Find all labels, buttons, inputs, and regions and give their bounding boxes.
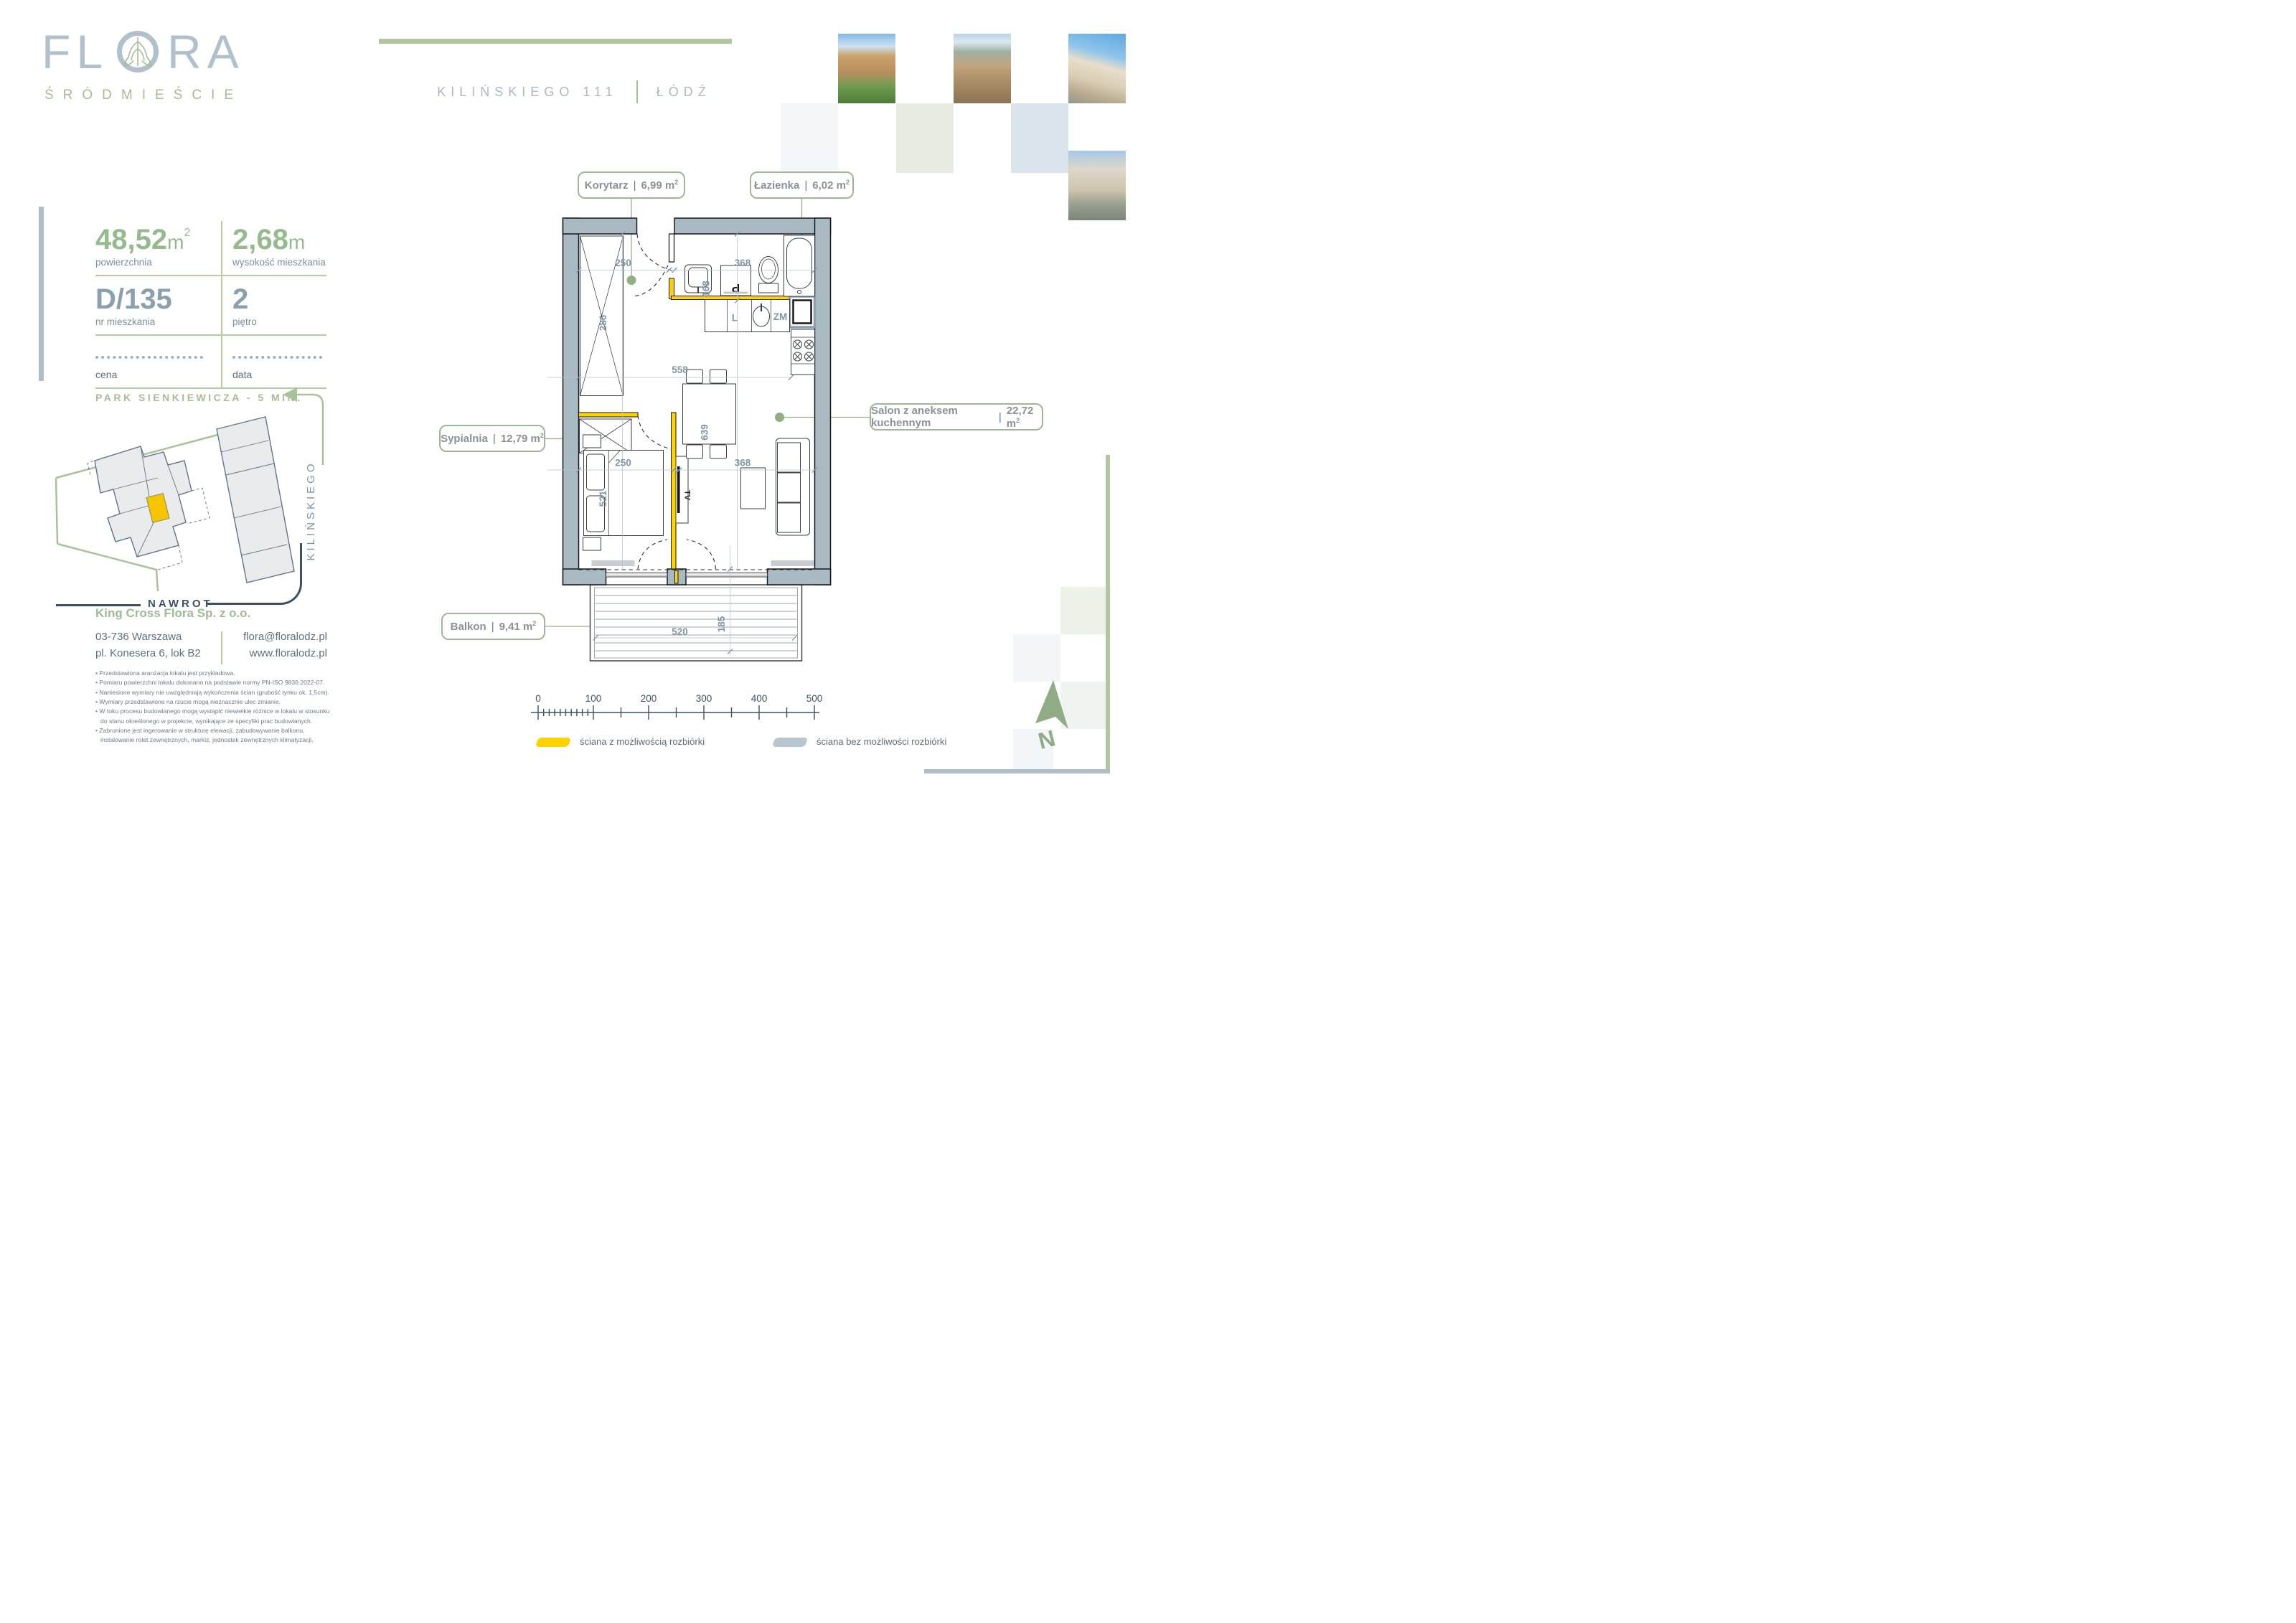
- deco-tile-gray: [781, 103, 838, 173]
- radiator: [592, 560, 635, 566]
- stat-unit-number-value: D/135: [95, 285, 221, 314]
- stat-floor-value: 2: [232, 285, 326, 314]
- dim-hall-depth: 286: [598, 314, 608, 331]
- dim-hall-width: 250: [615, 258, 631, 268]
- kitchen-counter: L ZM: [705, 300, 790, 332]
- north-arrow: N: [1027, 676, 1085, 753]
- bathtub: [784, 235, 815, 296]
- leaf-icon: [123, 36, 152, 67]
- demolishable-wall: [672, 413, 677, 569]
- stat-unit-number-label: nr mieszkania: [95, 316, 221, 327]
- room-label-salon: Salon z aneksem kuchennym| 22,72 m2: [870, 403, 1043, 431]
- stat-height-value: 2,68m: [232, 225, 326, 254]
- dim-bath-depth: 168: [701, 281, 712, 297]
- dim-bath-width: 368: [735, 258, 751, 268]
- disclaimer-item: • Pomiaru powierzchni lokalu dokonano na…: [95, 678, 332, 687]
- scale-label: 0: [535, 693, 541, 704]
- deco-tile-blue: [1011, 103, 1068, 173]
- deco-square: [1060, 587, 1108, 634]
- dim-living-length: 639: [700, 424, 710, 441]
- scale-label: 100: [585, 693, 602, 704]
- header-city: ŁÓDŹ: [657, 85, 711, 100]
- dining-table: [683, 370, 736, 458]
- stat-date-label: data: [232, 369, 326, 380]
- legend-label-demolishable: ściana z możliwością rozbiórki: [580, 736, 705, 747]
- dim-bedroom-width: 250: [615, 458, 631, 469]
- disclaimer: • Przedstawiona aranżacja lokalu jest pr…: [95, 669, 332, 745]
- scale-label: 300: [696, 693, 712, 704]
- stat-height: 2,68m wysokość mieszkania: [221, 217, 326, 275]
- header-green-bar: [379, 39, 732, 44]
- north-arrow-needle: [1035, 680, 1068, 729]
- flyer-page: FL RA ŚRÓDMIEŚCIE KILIŃSKIEGO 111 ŁÓDŹ: [0, 0, 1148, 812]
- photo-courtyard: [838, 34, 895, 103]
- header-address: KILIŃSKIEGO 111: [437, 85, 617, 100]
- company-name: King Cross Flora Sp. z o.o.: [95, 606, 250, 621]
- stats-block: 48,52m2 powierzchnia 2,68m wysokość mies…: [95, 217, 326, 389]
- stat-price: cena: [95, 336, 221, 387]
- stat-area: 48,52m2 powierzchnia: [95, 217, 221, 275]
- scale-label: 200: [641, 693, 657, 704]
- nawrot-line-right-corner: [206, 543, 302, 605]
- disclaimer-item: • Wymiary przedstawione na rzucie mogą n…: [95, 697, 332, 707]
- stat-area-value: 48,52m2: [95, 225, 221, 254]
- tv-symbol: TV: [683, 490, 692, 501]
- stat-area-label: powierzchnia: [95, 257, 221, 268]
- demolishable-wall-core: [675, 570, 679, 583]
- company-contact: flora@floralodz.pl www.floralodz.pl: [230, 629, 327, 662]
- stat-date: data: [221, 336, 326, 387]
- nightstand: [583, 435, 601, 448]
- stats-row-price-date: cena data: [95, 336, 326, 389]
- stats-row-area-height: 48,52m2 powierzchnia 2,68m wysokość mies…: [95, 217, 326, 276]
- brand-logo-word: FL RA: [42, 24, 329, 79]
- deco-square: [1013, 634, 1060, 682]
- radiator: [771, 560, 814, 566]
- deco-tile-green: [896, 103, 954, 173]
- balcony: [591, 585, 802, 661]
- bed: [583, 435, 664, 550]
- header-title: KILIŃSKIEGO 111 ŁÓDŹ: [402, 80, 746, 103]
- dim-total-width: 558: [672, 364, 688, 375]
- date-dotted-line: [232, 356, 322, 359]
- disclaimer-item: • Zabronione jest ingerowanie w struktur…: [95, 726, 332, 745]
- room-label-sypialnia: Sypialnia| 12,79 m2: [439, 425, 545, 452]
- stat-floor: 2 piętro: [221, 276, 326, 334]
- brand-logo: FL RA ŚRÓDMIEŚCIE: [42, 24, 329, 103]
- company-email-link[interactable]: flora@floralodz.pl: [243, 631, 327, 643]
- frame-bar-gray: [924, 769, 1110, 773]
- dim-balcony-width: 520: [672, 626, 688, 637]
- scale-label: 400: [751, 693, 768, 704]
- room-label-korytarz: Korytarz| 6,99 m2: [578, 171, 685, 199]
- company-street: pl. Konesera 6, lok B2: [95, 645, 201, 662]
- stats-divider: [221, 221, 222, 389]
- installation-shaft: [790, 296, 815, 327]
- dim-balcony-depth: 185: [716, 616, 727, 632]
- disclaimer-item: • Przedstawiona aranżacja lokalu jest pr…: [95, 669, 332, 678]
- dim-bedroom-length: 521: [598, 490, 608, 507]
- room-label-lazienka: Łazienka| 6,02 m2: [750, 171, 854, 199]
- stat-unit-number: D/135 nr mieszkania: [95, 276, 221, 334]
- photo-street-view: [1068, 151, 1126, 220]
- dim-living-width: 368: [735, 458, 751, 469]
- stats-row-unit-floor: D/135 nr mieszkania 2 piętro: [95, 276, 326, 336]
- nightstand: [583, 537, 601, 550]
- room-label-balkon: Balkon| 9,41 m2: [441, 613, 545, 640]
- logo-letters-fl: FL: [42, 24, 108, 79]
- sofa: [776, 438, 810, 535]
- scale-label: 500: [806, 693, 822, 704]
- stat-height-label: wysokość mieszkania: [232, 257, 326, 268]
- frame-bar-green: [1106, 455, 1110, 773]
- map-boundary-left: [56, 478, 57, 544]
- scale-bar: 0 100 200 300 400 500: [528, 693, 822, 725]
- price-dotted-line: [95, 356, 203, 359]
- legend-swatch-structural: [772, 738, 808, 747]
- photo-aerial-city: [954, 34, 1011, 103]
- map-street-kilinskiego: KILIŃSKIEGO: [305, 461, 317, 560]
- header-separator: [636, 80, 638, 103]
- disclaimer-item: • Naniesione wymiary nie uwzględniają wy…: [95, 688, 332, 697]
- disclaimer-item: • W toku procesu budowlanego mogą wystąp…: [95, 707, 332, 726]
- company-website-link[interactable]: www.floralodz.pl: [250, 647, 327, 659]
- park-distance-note: PARK SIENKIEWICZA - 5 MIN.: [95, 392, 303, 403]
- stat-floor-label: piętro: [232, 316, 326, 327]
- demolishable-wall: [672, 296, 790, 300]
- stat-price-label: cena: [95, 369, 221, 380]
- stats-left-accent-bar: [39, 207, 44, 381]
- demolishable-wall: [579, 413, 639, 417]
- leaf-logo-icon: [117, 31, 159, 72]
- company-address: 03-736 Warszawa pl. Konesera 6, lok B2: [95, 629, 201, 662]
- legend-swatch-demolishable: [535, 738, 571, 747]
- coffee-table: [741, 468, 766, 509]
- logo-letters-ra: RA: [167, 24, 245, 79]
- photo-building-corner: [1068, 34, 1126, 103]
- toilet: [759, 257, 778, 293]
- brand-subtitle: ŚRÓDMIEŚCIE: [42, 88, 329, 103]
- north-letter: N: [1035, 725, 1058, 753]
- dishwasher-symbol: ZM: [773, 311, 788, 322]
- tv-console: TV: [676, 456, 692, 523]
- stove: [791, 329, 815, 375]
- legend-label-structural: ściana bez możliwości rozbiórki: [817, 736, 946, 747]
- company-divider: [221, 631, 222, 664]
- company-postal-city: 03-736 Warszawa: [95, 629, 201, 645]
- fridge-symbol: L: [732, 313, 738, 324]
